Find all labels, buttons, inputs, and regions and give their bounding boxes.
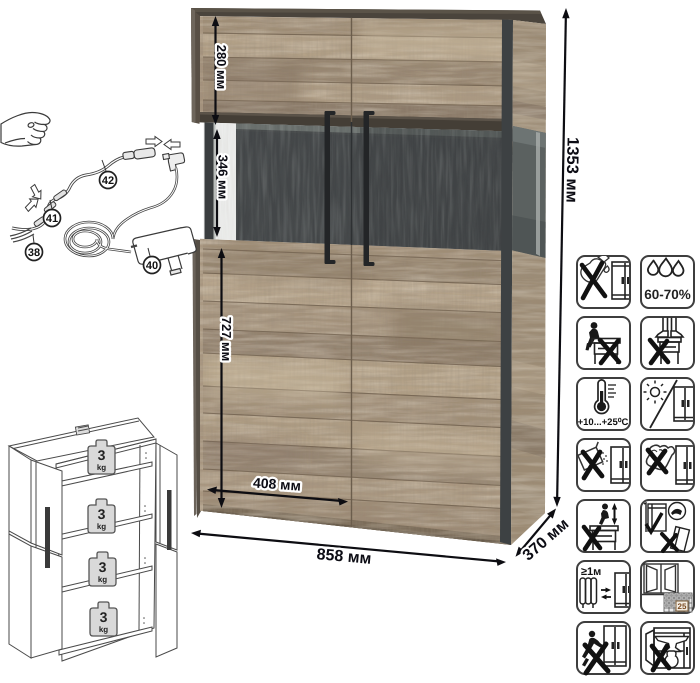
svg-text:858 мм: 858 мм [316, 546, 372, 568]
svg-text:3: 3 [98, 506, 106, 522]
svg-text:kg: kg [98, 575, 107, 584]
svg-text:408 мм: 408 мм [253, 474, 302, 493]
svg-text:727 мм: 727 мм [219, 317, 234, 362]
svg-text:40: 40 [146, 260, 158, 272]
svg-text:+10...+25⁰С: +10...+25⁰С [578, 417, 629, 428]
svg-text:kg: kg [99, 625, 108, 634]
svg-text:3: 3 [98, 447, 106, 463]
svg-text:kg: kg [97, 522, 106, 531]
svg-text:3: 3 [99, 559, 107, 575]
svg-text:≥1м: ≥1м [581, 566, 601, 578]
svg-text:42: 42 [102, 175, 114, 187]
svg-text:1353 мм: 1353 мм [562, 137, 581, 203]
svg-text:60-70%: 60-70% [644, 287, 691, 302]
svg-text:38: 38 [28, 247, 40, 259]
svg-text:280 мм: 280 мм [214, 45, 229, 90]
svg-text:3: 3 [100, 609, 108, 625]
svg-text:25: 25 [678, 602, 687, 611]
svg-text:41: 41 [46, 213, 58, 225]
svg-text:kg: kg [97, 463, 106, 472]
svg-text:346 мм: 346 мм [216, 155, 231, 200]
